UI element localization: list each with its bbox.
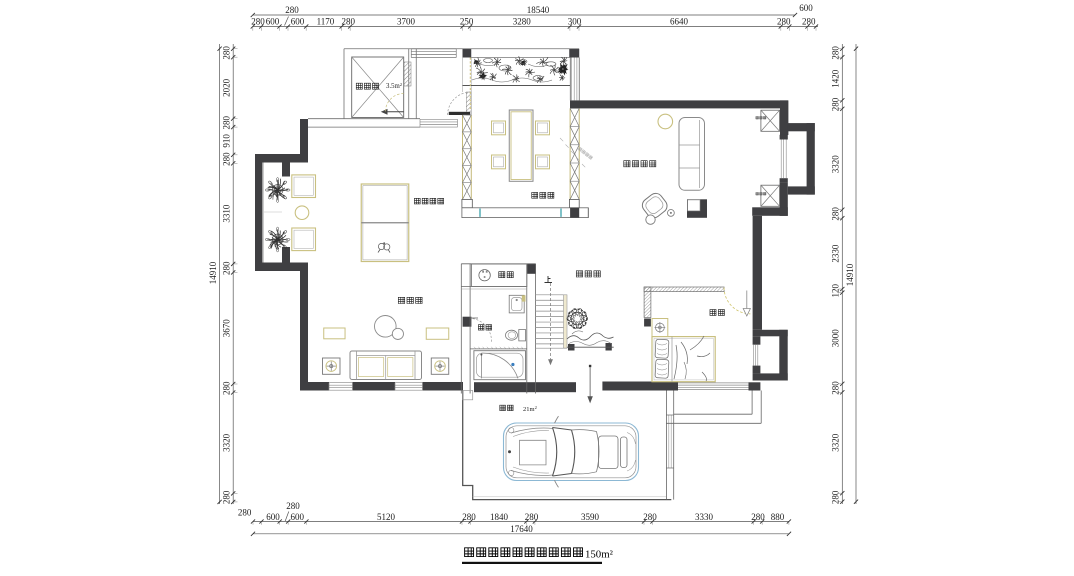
- svg-text:1840: 1840: [490, 512, 509, 522]
- svg-text:2020: 2020: [222, 78, 232, 97]
- svg-text:2330: 2330: [831, 244, 841, 263]
- svg-text:1420: 1420: [831, 69, 841, 88]
- svg-text:14910: 14910: [208, 261, 218, 284]
- svg-text:120: 120: [831, 284, 841, 298]
- svg-text:280: 280: [462, 512, 476, 522]
- svg-text:280: 280: [831, 207, 841, 221]
- svg-text:280: 280: [286, 501, 300, 511]
- svg-text:600: 600: [799, 3, 813, 13]
- svg-text:280: 280: [777, 17, 791, 27]
- svg-text:3320: 3320: [831, 155, 841, 174]
- svg-text:280: 280: [643, 512, 657, 522]
- svg-text:1170: 1170: [317, 17, 335, 27]
- svg-text:280: 280: [525, 512, 539, 522]
- svg-text:3310: 3310: [222, 204, 232, 223]
- svg-text:3590: 3590: [581, 512, 600, 522]
- svg-text:280: 280: [238, 508, 252, 518]
- svg-text:280: 280: [222, 381, 232, 395]
- svg-text:250: 250: [460, 17, 474, 27]
- svg-text:280: 280: [831, 381, 841, 395]
- svg-text:280: 280: [285, 5, 299, 15]
- svg-text:6640: 6640: [670, 17, 689, 27]
- svg-text:300: 300: [568, 17, 582, 27]
- svg-text:3320: 3320: [831, 433, 841, 452]
- svg-text:280: 280: [831, 97, 841, 111]
- svg-text:880: 880: [771, 512, 785, 522]
- svg-text:280: 280: [831, 490, 841, 504]
- svg-text:910: 910: [222, 134, 232, 148]
- svg-text:600: 600: [291, 512, 305, 522]
- svg-text:280: 280: [251, 17, 265, 27]
- svg-text:280: 280: [341, 17, 355, 27]
- svg-text:18540: 18540: [527, 5, 550, 15]
- svg-text:150m²: 150m²: [585, 548, 613, 560]
- svg-text:3280: 3280: [513, 17, 532, 27]
- svg-text:3700: 3700: [397, 17, 416, 27]
- svg-text:3330: 3330: [695, 512, 714, 522]
- svg-text:280: 280: [751, 512, 765, 522]
- svg-text:280: 280: [222, 261, 232, 275]
- svg-text:280: 280: [222, 490, 232, 504]
- svg-text:3320: 3320: [222, 433, 232, 452]
- svg-text:280: 280: [222, 116, 232, 130]
- svg-text:17640: 17640: [510, 524, 533, 534]
- svg-text:3000: 3000: [831, 329, 841, 348]
- svg-text:600: 600: [291, 17, 305, 27]
- svg-text:280: 280: [222, 152, 232, 166]
- svg-text:280: 280: [222, 46, 232, 60]
- svg-text:3670: 3670: [222, 319, 232, 338]
- svg-text:280: 280: [802, 17, 816, 27]
- svg-text:600: 600: [266, 17, 280, 27]
- svg-text:5120: 5120: [377, 512, 396, 522]
- svg-text:14910: 14910: [845, 263, 855, 286]
- svg-text:600: 600: [266, 512, 280, 522]
- svg-text:280: 280: [831, 46, 841, 60]
